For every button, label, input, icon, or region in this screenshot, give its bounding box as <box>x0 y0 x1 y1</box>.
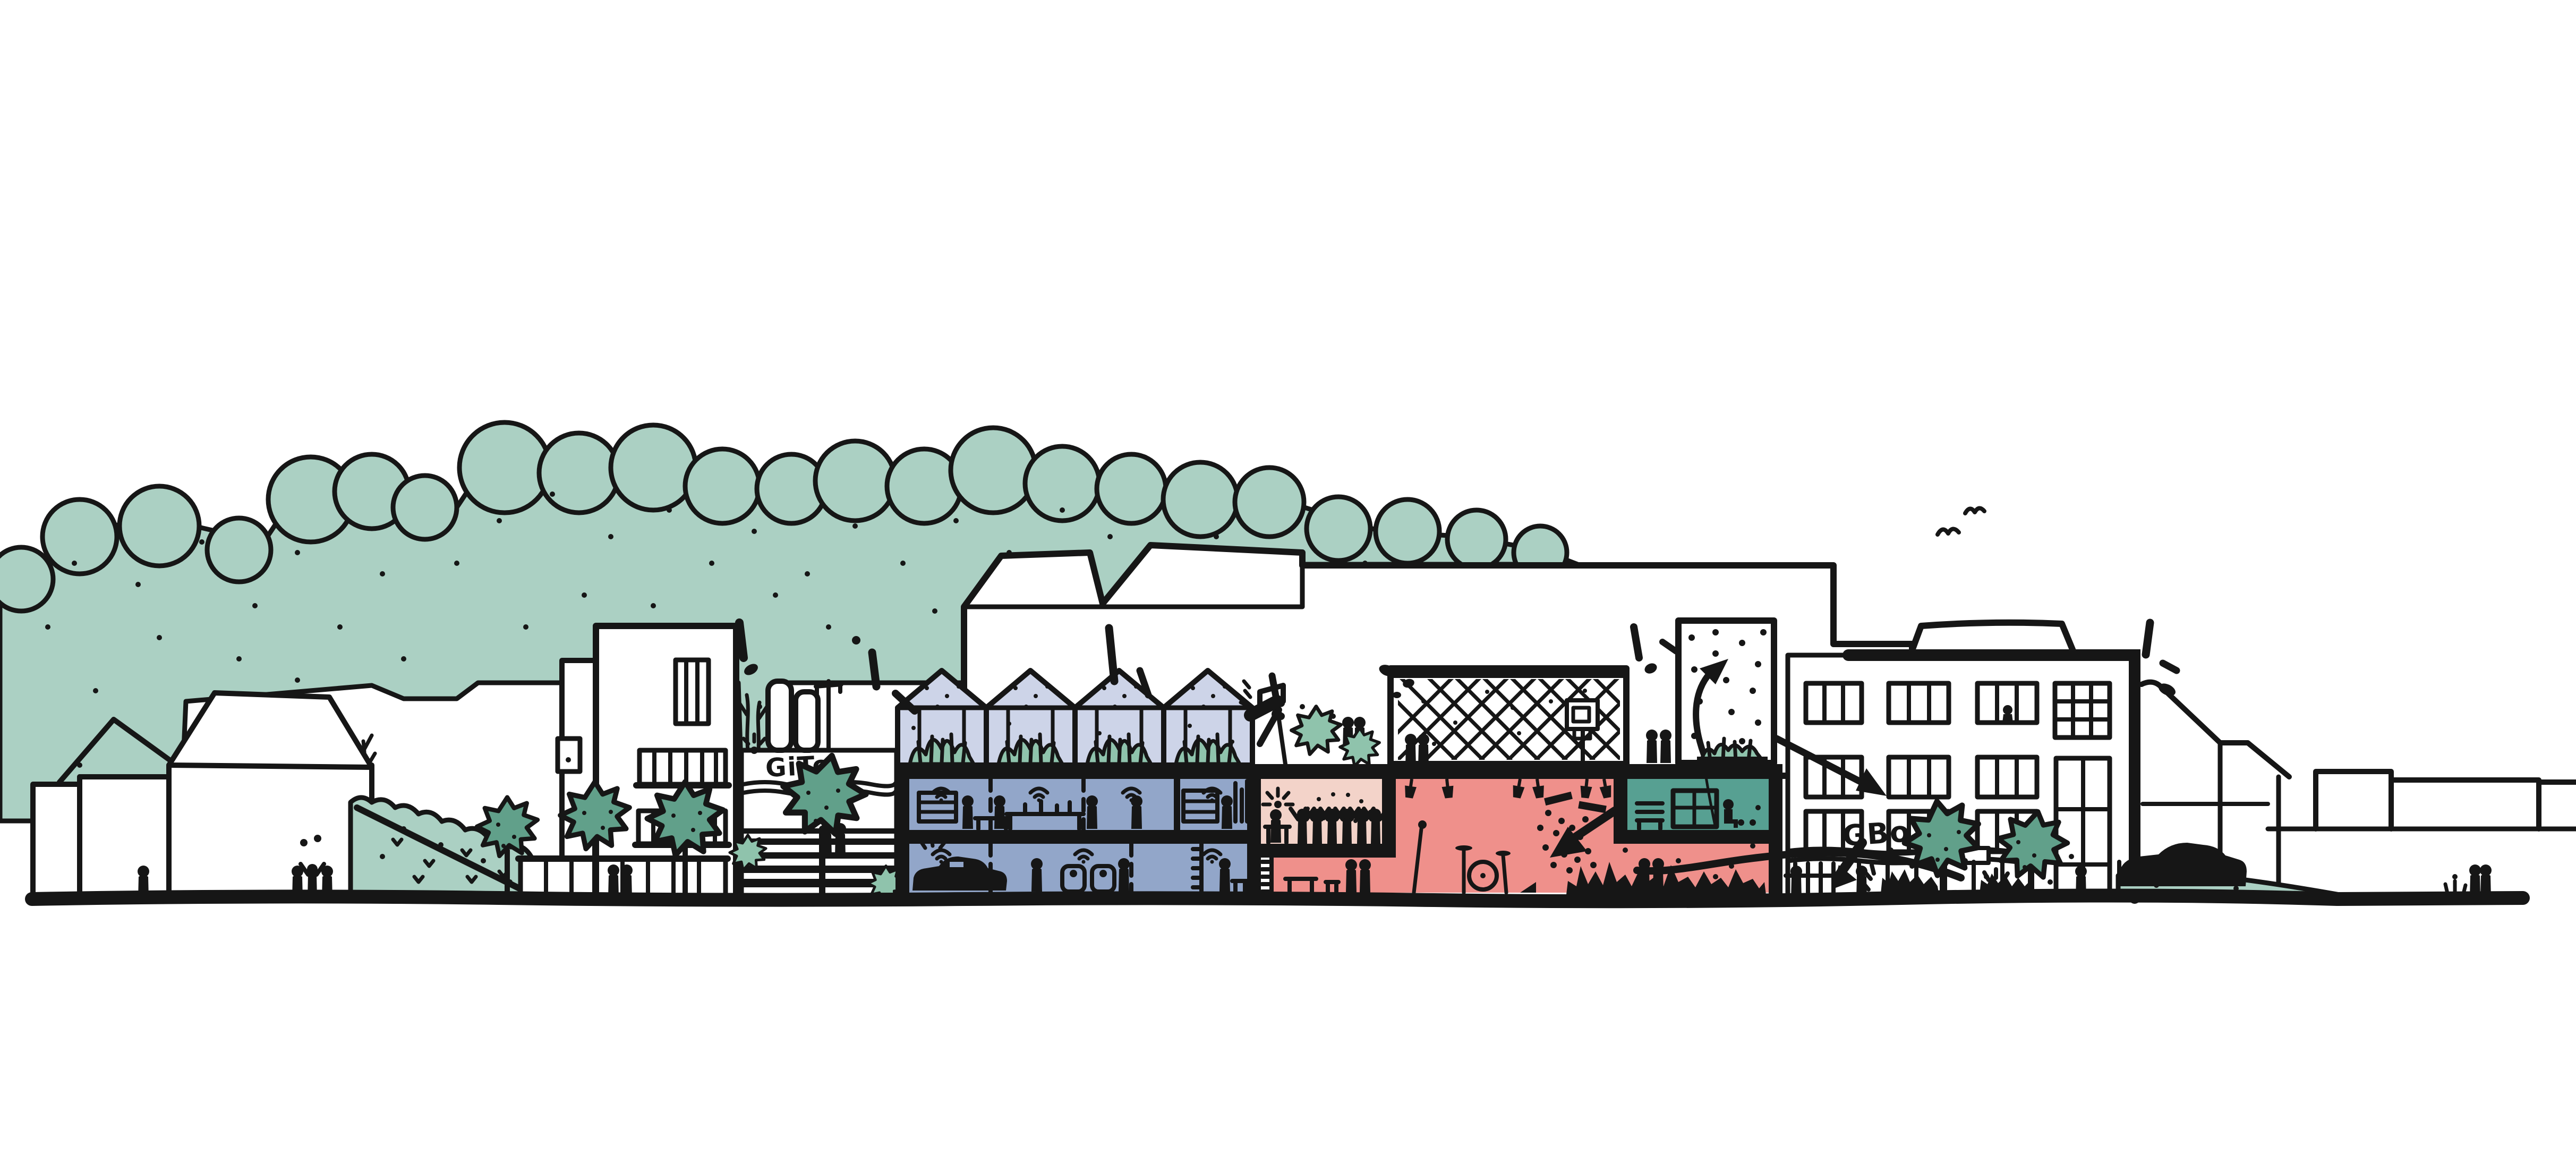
resident <box>994 795 1005 829</box>
house-annex <box>33 784 80 898</box>
resident <box>1221 795 1233 829</box>
teacher <box>1270 809 1282 843</box>
gbo-building: GBo <box>1786 623 2178 899</box>
terrace-person <box>1660 730 1671 763</box>
scene: GBo <box>0 0 2576 1153</box>
slab-b-window-strip <box>676 660 709 724</box>
player <box>1418 734 1429 767</box>
illustration-canvas: GBo <box>0 0 2576 1153</box>
gito-roof-stack <box>768 681 791 750</box>
slab-a-window <box>558 739 580 772</box>
house-2 <box>169 765 372 898</box>
gito-roof-stack <box>796 692 818 750</box>
visitor <box>1345 859 1357 893</box>
ground-line <box>32 895 2523 901</box>
resident <box>1086 795 1098 829</box>
house-1 <box>80 777 169 898</box>
gbo-sign: GBo <box>1841 815 1912 853</box>
player <box>1405 734 1417 767</box>
gbo-grid-window <box>2055 683 2110 737</box>
resident <box>1118 858 1130 892</box>
resident <box>1219 858 1231 892</box>
visitor <box>1652 858 1664 892</box>
visitor <box>1639 858 1650 892</box>
visitor <box>1359 859 1371 893</box>
terrace-person <box>1646 730 1658 763</box>
resident <box>1131 795 1142 829</box>
resident <box>962 795 974 829</box>
classroom <box>1261 779 1387 844</box>
resident <box>1031 858 1043 892</box>
